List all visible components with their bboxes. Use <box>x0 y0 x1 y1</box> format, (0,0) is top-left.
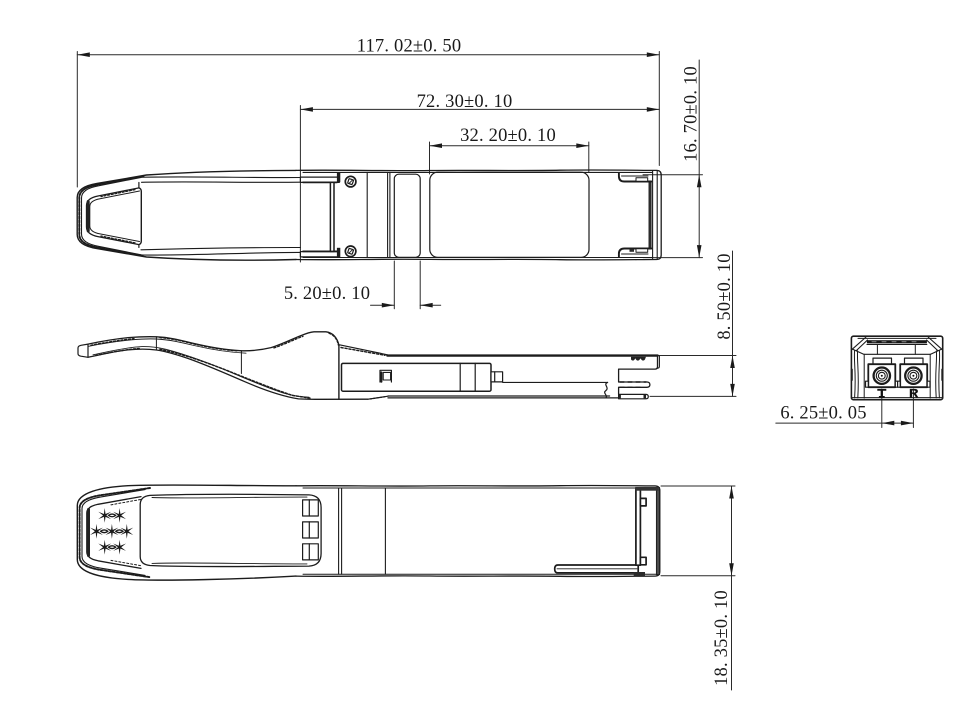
svg-text:8. 50±0. 10: 8. 50±0. 10 <box>715 253 735 339</box>
svg-text:117. 02±0. 50: 117. 02±0. 50 <box>357 36 462 56</box>
svg-text:6. 25±0. 05: 6. 25±0. 05 <box>780 403 866 423</box>
svg-text:32. 20±0. 10: 32. 20±0. 10 <box>460 126 556 146</box>
svg-text:5. 20±0. 10: 5. 20±0. 10 <box>284 284 370 304</box>
svg-text:18. 35±0. 10: 18. 35±0. 10 <box>712 590 732 686</box>
svg-text:16. 70±0. 10: 16. 70±0. 10 <box>682 66 702 162</box>
svg-text:72. 30±0. 10: 72. 30±0. 10 <box>417 92 513 112</box>
